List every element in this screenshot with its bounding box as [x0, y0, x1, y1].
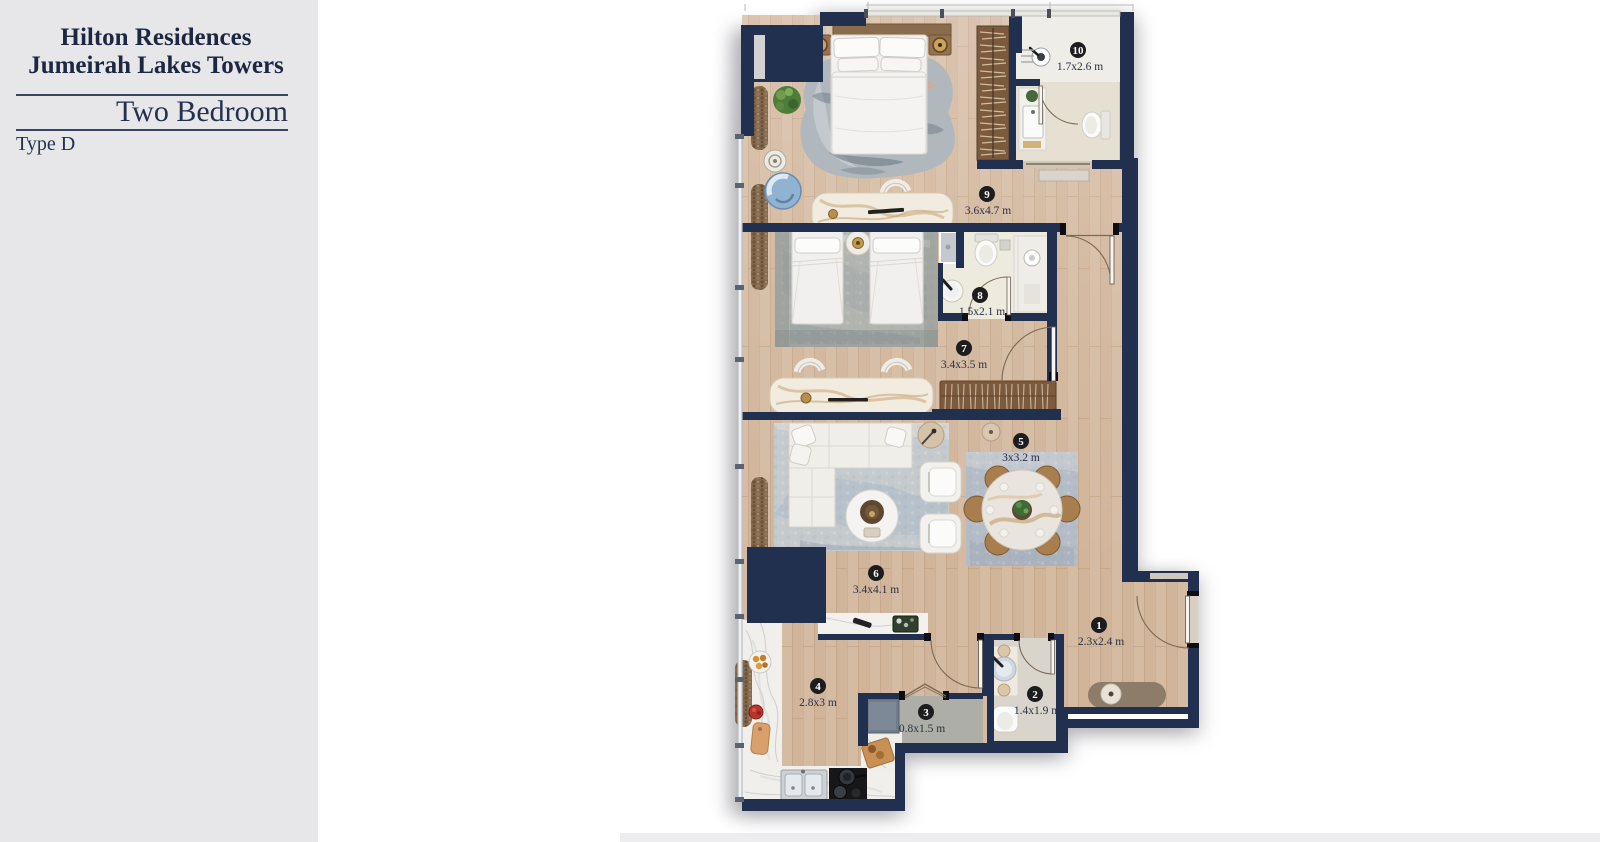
svg-text:1: 1	[1096, 620, 1102, 632]
svg-text:4: 4	[815, 681, 821, 693]
svg-text:1.4x1.9 m: 1.4x1.9 m	[1014, 705, 1060, 717]
svg-text:3x3.2 m: 3x3.2 m	[1002, 452, 1040, 464]
svg-text:3: 3	[923, 707, 929, 719]
svg-text:7: 7	[961, 343, 967, 355]
svg-text:2.3x2.4 m: 2.3x2.4 m	[1078, 636, 1124, 648]
svg-text:8: 8	[977, 290, 983, 302]
svg-text:2.8x3 m: 2.8x3 m	[799, 697, 837, 709]
svg-text:1.5x2.1 m: 1.5x2.1 m	[959, 306, 1005, 318]
svg-text:5: 5	[1018, 436, 1024, 448]
svg-text:1.7x2.6 m: 1.7x2.6 m	[1057, 61, 1103, 73]
svg-text:0.8x1.5 m: 0.8x1.5 m	[899, 723, 945, 735]
svg-text:2: 2	[1032, 689, 1038, 701]
svg-text:10: 10	[1073, 45, 1085, 57]
svg-text:3.4x3.5 m: 3.4x3.5 m	[941, 359, 987, 371]
svg-text:6: 6	[873, 568, 879, 580]
svg-text:9: 9	[984, 189, 990, 201]
svg-text:3.6x4.7 m: 3.6x4.7 m	[965, 205, 1011, 217]
svg-text:3.4x4.1 m: 3.4x4.1 m	[853, 584, 899, 596]
